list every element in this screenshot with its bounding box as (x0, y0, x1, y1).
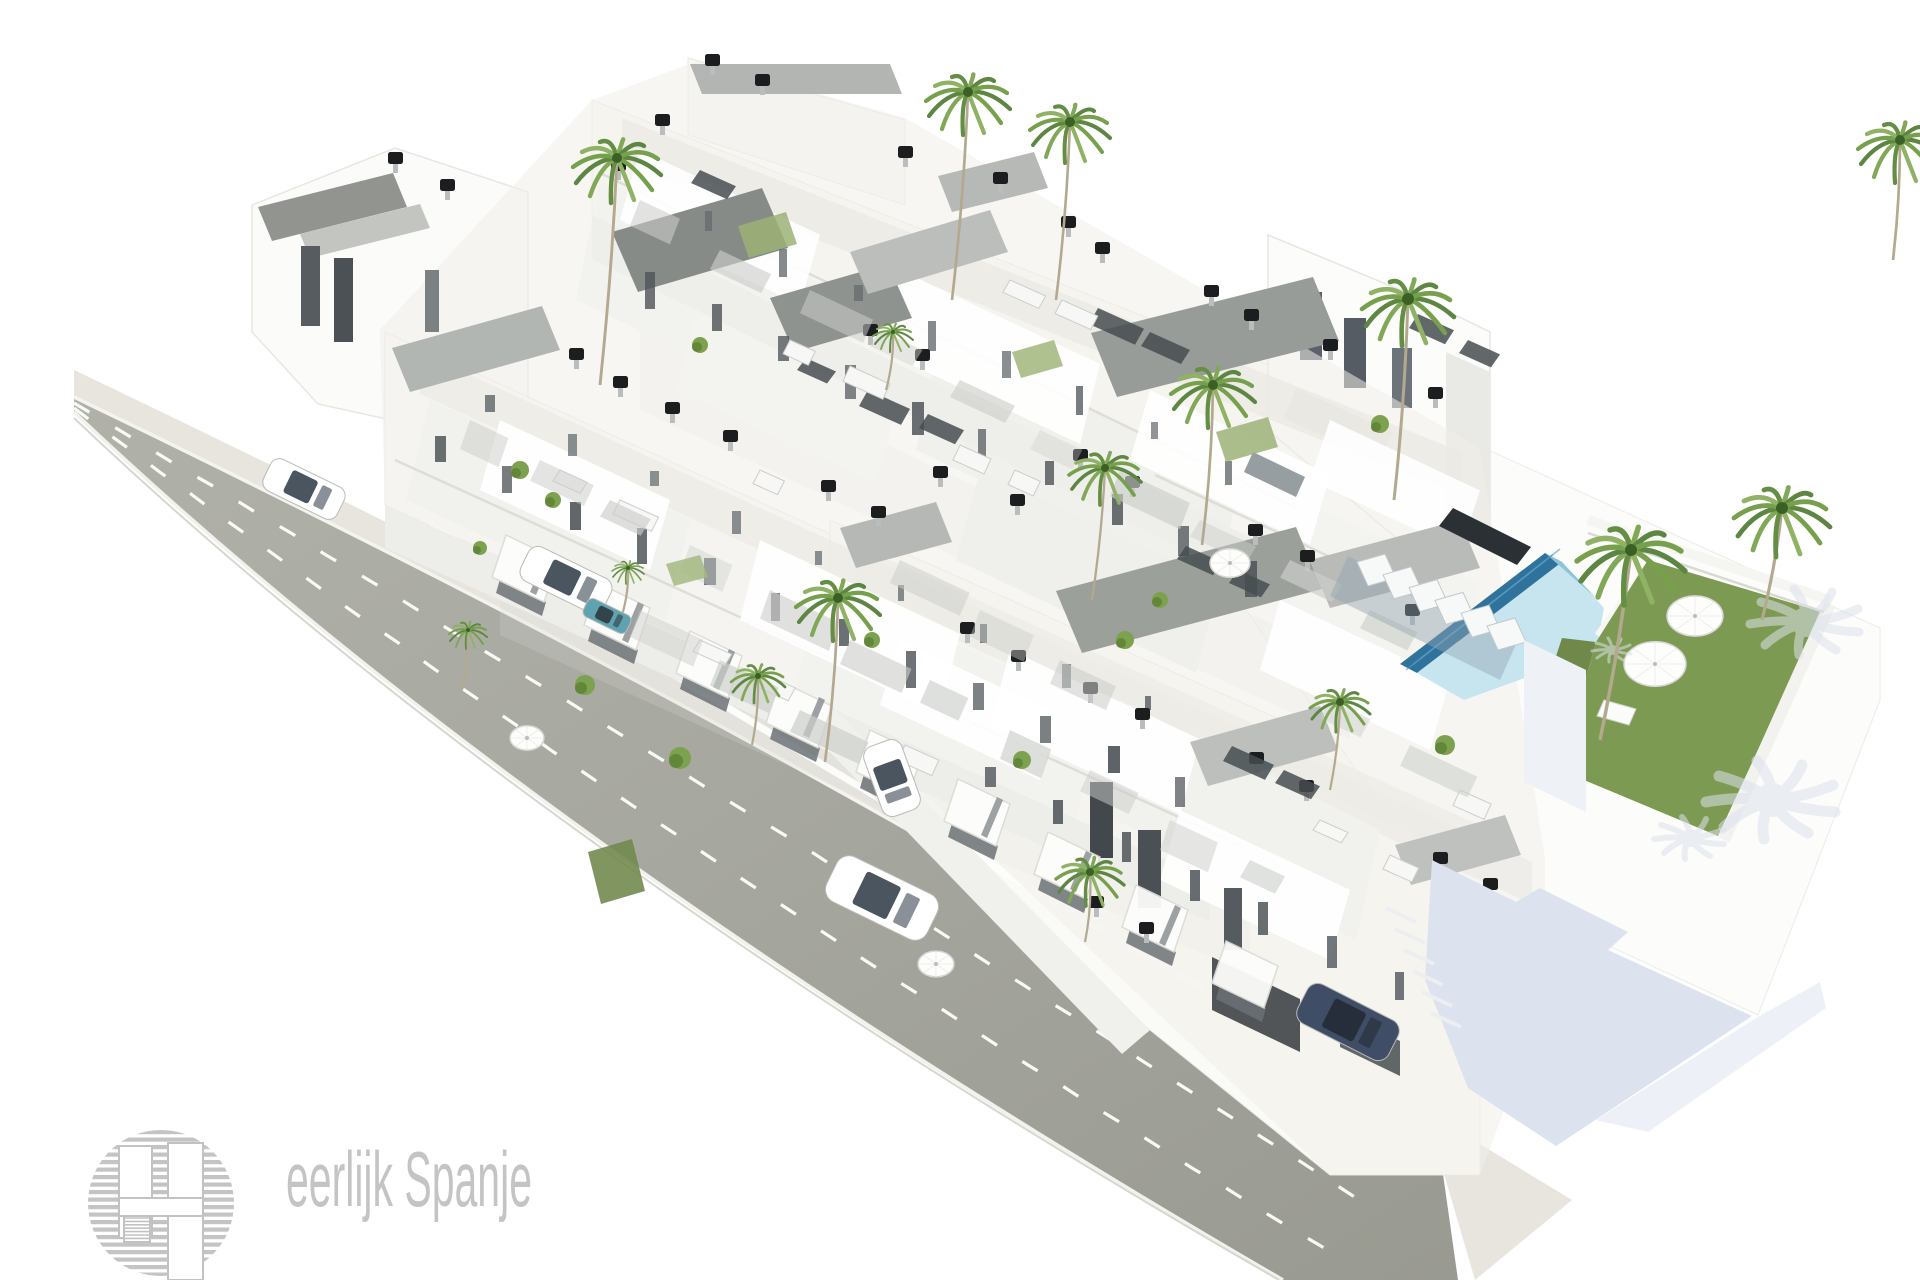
svg-text:eerlijk Spanje: eerlijk Spanje (286, 1135, 532, 1223)
